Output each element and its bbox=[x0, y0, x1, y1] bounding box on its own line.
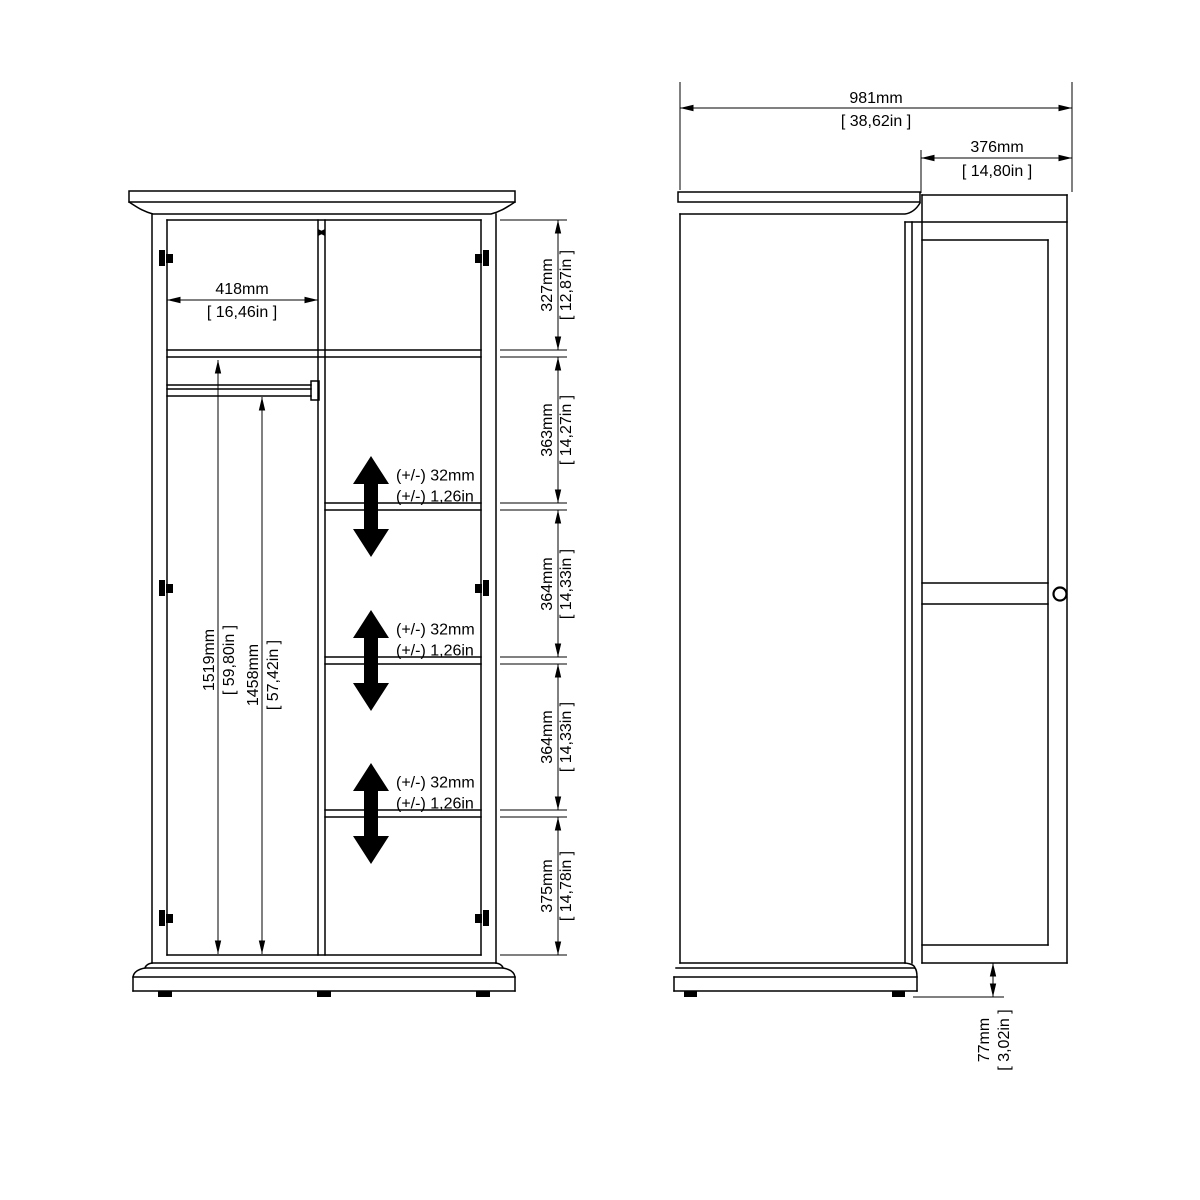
hinge-icon bbox=[475, 250, 489, 266]
hinge-icon bbox=[159, 910, 173, 926]
right-dimension-column: 327mm [ 12,87in ] 363mm [ 14,27in ] 364m… bbox=[500, 220, 575, 955]
dim-label-364b-mm: 364mm bbox=[539, 710, 556, 763]
door-knob-icon bbox=[1054, 588, 1067, 601]
adjust-note-2-line1: (+/-) 32mm bbox=[396, 622, 475, 639]
adjust-note-3-line1: (+/-) 32mm bbox=[396, 775, 475, 792]
dim-label-1458-mm: 1458mm bbox=[245, 644, 262, 706]
side-cornice bbox=[678, 192, 920, 214]
hinge-icon bbox=[159, 580, 173, 596]
dim-label-1519-mm: 1519mm bbox=[201, 629, 218, 691]
foot-icon bbox=[317, 991, 331, 997]
dim-label-363-in: [ 14,27in ] bbox=[558, 395, 575, 465]
dimension-door: 376mm [ 14,80in ] bbox=[921, 139, 1072, 193]
dim-label-1519-in: [ 59,80in ] bbox=[221, 625, 238, 695]
dim-label-77-in: [ 3,02in ] bbox=[996, 1009, 1013, 1070]
dim-label-375-in: [ 14,78in ] bbox=[558, 851, 575, 921]
dim-label-418-in: [ 16,46in ] bbox=[207, 304, 277, 321]
open-door bbox=[922, 195, 1067, 963]
divider-connector-icon bbox=[318, 229, 325, 236]
dimension-rail-height: 1458mm [ 57,42in ] bbox=[245, 397, 282, 954]
wardrobe-technical-drawing: 418mm [ 16,46in ] 1519mm [ 59,80in ] 145… bbox=[0, 0, 1200, 1200]
side-view: 981mm [ 38,62in ] 376mm [ 14,80in ] bbox=[674, 82, 1072, 1071]
dimension-plinth: 77mm [ 3,02in ] bbox=[913, 963, 1013, 1071]
foot-icon bbox=[684, 991, 697, 997]
dim-label-981-mm: 981mm bbox=[849, 90, 902, 107]
dim-label-981-in: [ 38,62in ] bbox=[841, 113, 911, 130]
dim-label-363-mm: 363mm bbox=[539, 403, 556, 456]
up-down-arrow-icon bbox=[353, 763, 389, 864]
shelf-adjust-group-3: (+/-) 32mm (+/-) 1,26in bbox=[353, 763, 475, 864]
dim-label-77-mm: 77mm bbox=[976, 1018, 993, 1062]
foot-icon bbox=[892, 991, 905, 997]
side-body bbox=[680, 214, 1067, 963]
dim-label-364a-mm: 364mm bbox=[539, 557, 556, 610]
adjust-note-1-line2: (+/-) 1,26in bbox=[396, 489, 474, 506]
adjustable-shelves bbox=[325, 503, 481, 817]
adjust-note-1-line1: (+/-) 32mm bbox=[396, 468, 475, 485]
dim-label-364b-in: [ 14,33in ] bbox=[558, 702, 575, 772]
dim-label-364a-in: [ 14,33in ] bbox=[558, 549, 575, 619]
hinges bbox=[159, 250, 489, 926]
shelf-adjust-group-2: (+/-) 32mm (+/-) 1,26in bbox=[353, 610, 475, 711]
dim-label-1458-in: [ 57,42in ] bbox=[265, 640, 282, 710]
dim-label-418-mm: 418mm bbox=[215, 281, 268, 298]
front-view: 418mm [ 16,46in ] 1519mm [ 59,80in ] 145… bbox=[129, 191, 575, 997]
dimension-interior-height: 1519mm [ 59,80in ] bbox=[201, 360, 238, 954]
up-down-arrow-icon bbox=[353, 456, 389, 557]
hanging-rail bbox=[167, 381, 319, 400]
dim-label-376-mm: 376mm bbox=[970, 139, 1023, 156]
dim-label-327-in: [ 12,87in ] bbox=[558, 250, 575, 320]
shelf-adjust-group-1: (+/-) 32mm (+/-) 1,26in bbox=[353, 456, 475, 557]
adjust-note-3-line2: (+/-) 1,26in bbox=[396, 796, 474, 813]
dim-label-375-mm: 375mm bbox=[539, 859, 556, 912]
cornice bbox=[129, 191, 515, 214]
side-plinth bbox=[674, 963, 917, 997]
hinge-icon bbox=[475, 580, 489, 596]
dim-label-327-mm: 327mm bbox=[539, 258, 556, 311]
plinth bbox=[133, 963, 515, 997]
carcass bbox=[152, 214, 496, 963]
hinge-icon bbox=[475, 910, 489, 926]
hinge-icon bbox=[159, 250, 173, 266]
dimension-opening-width: 418mm [ 16,46in ] bbox=[167, 281, 318, 321]
up-down-arrow-icon bbox=[353, 610, 389, 711]
drawing-canvas: 418mm [ 16,46in ] 1519mm [ 59,80in ] 145… bbox=[0, 0, 1200, 1200]
adjust-note-2-line2: (+/-) 1,26in bbox=[396, 643, 474, 660]
foot-icon bbox=[158, 991, 172, 997]
foot-icon bbox=[476, 991, 490, 997]
dim-label-376-in: [ 14,80in ] bbox=[962, 163, 1032, 180]
